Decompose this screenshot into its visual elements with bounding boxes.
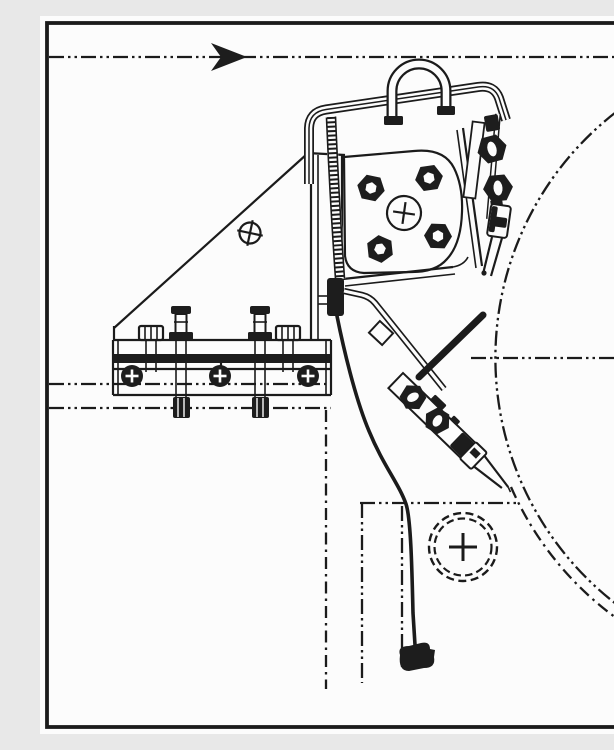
center-mark-icon <box>385 194 423 232</box>
flange-hex-bolt <box>355 173 387 202</box>
pivot-bracket <box>327 278 344 316</box>
base-plate <box>113 306 331 418</box>
flange <box>344 151 462 273</box>
top-centerline <box>49 43 614 71</box>
cable-end-fitting <box>399 643 435 671</box>
link-hex-clamp <box>482 174 514 202</box>
under-nut <box>173 397 190 418</box>
center-mark-icon <box>235 218 266 249</box>
flange-hex-bolt <box>362 232 397 265</box>
vessel-outline <box>495 94 614 635</box>
link-clevis <box>487 204 511 238</box>
hex-nut <box>139 326 163 340</box>
cable <box>337 316 435 671</box>
link-stack <box>463 114 514 276</box>
drawing-canvas <box>40 16 614 734</box>
stud-bolt <box>169 306 193 340</box>
turnbuckle <box>385 368 523 503</box>
flange-hex-bolt <box>424 223 453 248</box>
hex-nut <box>276 326 300 340</box>
plate-centerlines <box>49 384 331 689</box>
stop-rod <box>419 315 483 377</box>
turnbuckle-fork <box>474 456 516 497</box>
dashed-hole-circle <box>429 513 497 581</box>
center-cross-icon <box>449 533 477 561</box>
under-nut <box>252 397 269 418</box>
stud-bolt <box>248 306 272 340</box>
link-fork <box>481 237 502 276</box>
flange-hex-bolt <box>413 164 444 192</box>
engineering-drawing-sheet: Engineering drawing: wall-mounted bracke… <box>40 16 614 734</box>
